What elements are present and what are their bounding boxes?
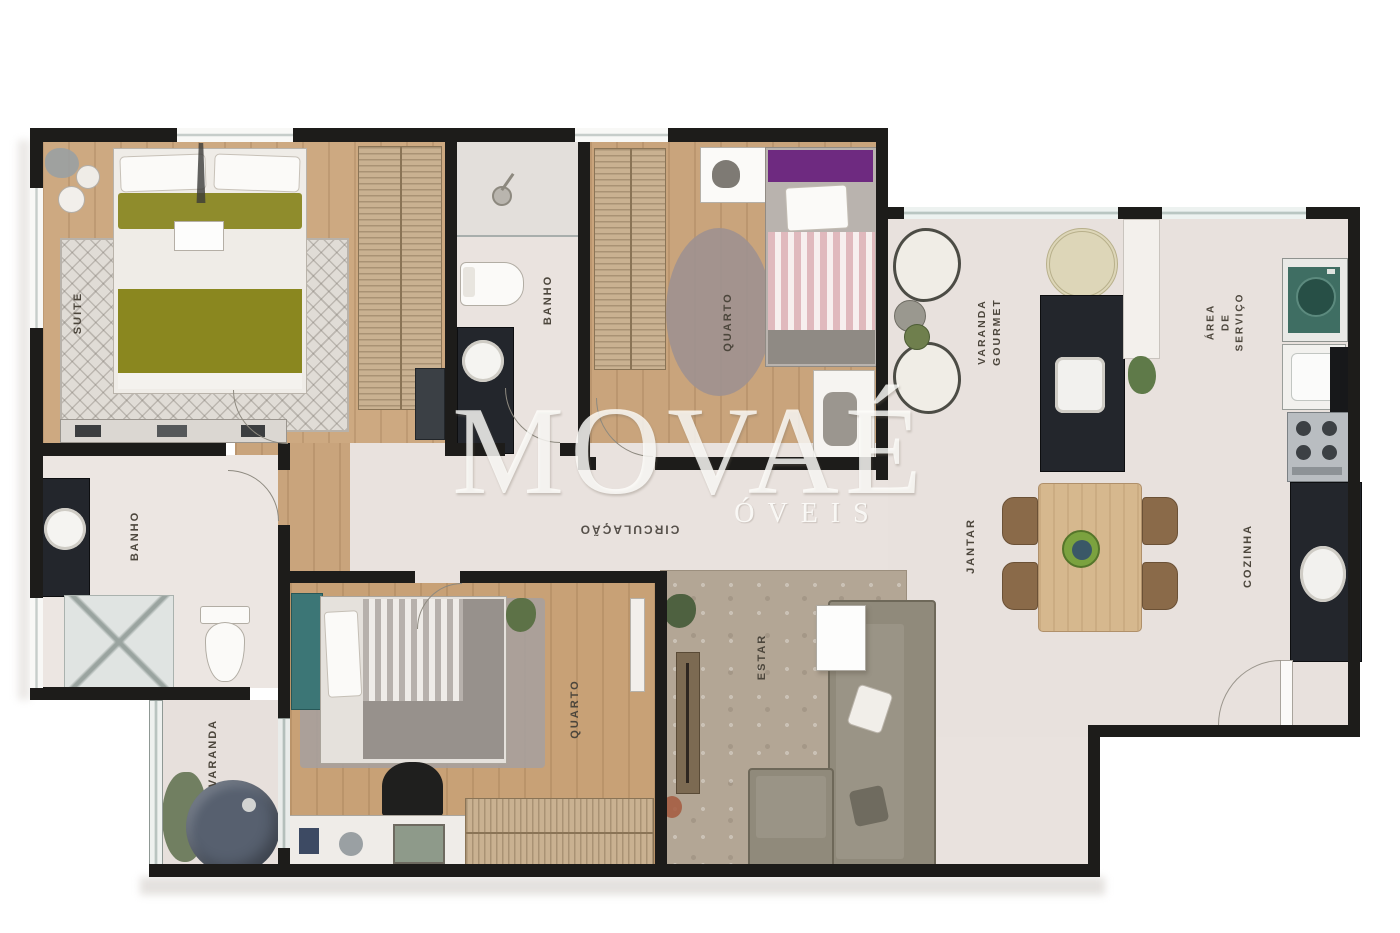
floor-plan: SUITE BANHO QUARTO VARANDA GOURMET ÁREA … [0, 0, 1400, 933]
suite-bed-tray [174, 221, 224, 251]
suite-pouf [58, 186, 85, 213]
wall [1306, 207, 1360, 219]
quarto-bottom-headboard [291, 593, 323, 710]
sink-social [44, 508, 86, 550]
sofa-chaise [748, 768, 834, 869]
quarto-bottom-tv [382, 762, 443, 816]
quarto-top-chair [712, 160, 740, 188]
outer-shadow-bottom [140, 877, 1105, 895]
suite-pouf [76, 165, 100, 189]
sink-suite [462, 340, 504, 382]
wall [655, 571, 667, 865]
room-label-quarto-bottom: QUARTO [568, 679, 584, 738]
window [177, 128, 293, 142]
dining-chair [1002, 497, 1038, 545]
quarto-top-bed [765, 147, 878, 367]
glass-wall-varanda [149, 700, 163, 872]
room-label-varanda-gourmet: VARANDA GOURMET [975, 298, 1005, 366]
wall [30, 128, 888, 142]
wall [290, 571, 415, 583]
wall [149, 864, 1100, 877]
room-label-area-servico: ÁREA DE SERVIÇO [1204, 293, 1248, 352]
tv-panel [676, 652, 700, 794]
quarto-top-wardrobe [594, 148, 666, 370]
glass-door-varanda-quarto [278, 718, 290, 850]
dining-chair [1142, 497, 1178, 545]
room-label-estar: ESTAR [755, 634, 771, 680]
wall [1118, 207, 1162, 219]
window [575, 128, 668, 142]
suite-corner-plant [45, 148, 79, 178]
room-label-suite: SUITE [71, 292, 87, 334]
window [30, 598, 43, 688]
room-label-quarto-top: QUARTO [721, 292, 737, 351]
room-label-cozinha: COZINHA [1241, 524, 1257, 588]
varanda-table [186, 780, 280, 874]
wall [278, 525, 290, 718]
quarto-bottom-wardrobe [465, 798, 654, 866]
quarto-bottom-shelf [286, 815, 494, 867]
suite-tv-rack [415, 368, 445, 440]
window [30, 188, 43, 328]
vg-round-rug [1046, 228, 1118, 300]
vg-divider-wall [1123, 219, 1160, 359]
suite-bed [113, 148, 307, 394]
wall [30, 443, 226, 456]
toilet-suite [460, 262, 524, 306]
room-label-banho-social: BANHO [128, 511, 144, 561]
room-label-jantar: JANTAR [964, 518, 980, 574]
dining-chair [1142, 562, 1178, 610]
watermark-sub: ÓVEIS [728, 498, 888, 530]
washing-machine [1282, 258, 1348, 342]
outer-shadow-left [18, 140, 30, 700]
vg-sink [1055, 357, 1105, 413]
sofa-pillow [849, 785, 890, 827]
shower-area [457, 141, 578, 237]
entry-door-leaf [1280, 660, 1293, 726]
dining-centerpiece-bowl [1072, 540, 1092, 560]
wall [278, 848, 290, 877]
side-table-plant [904, 324, 930, 350]
room-label-banho-suite: BANHO [541, 275, 557, 325]
wall [888, 207, 904, 219]
stove [1287, 412, 1349, 482]
toilet-social [196, 606, 252, 684]
coffee-table [816, 605, 866, 671]
room-label-varanda: VARANDA [206, 719, 222, 787]
shower-box-social [64, 595, 174, 689]
vg-plant [1128, 356, 1156, 394]
dining-chair [1002, 562, 1038, 610]
wall [460, 571, 655, 583]
quarto-bottom-bed [320, 596, 507, 764]
wall [1348, 207, 1360, 737]
wall [1088, 725, 1360, 737]
kitchen-sink [1300, 546, 1346, 602]
wall [278, 455, 290, 470]
wall [30, 687, 162, 700]
quarto-top-rug [666, 228, 772, 396]
wall [1088, 737, 1100, 877]
wall [161, 687, 250, 700]
quarto-bottom-mirror [630, 598, 645, 692]
